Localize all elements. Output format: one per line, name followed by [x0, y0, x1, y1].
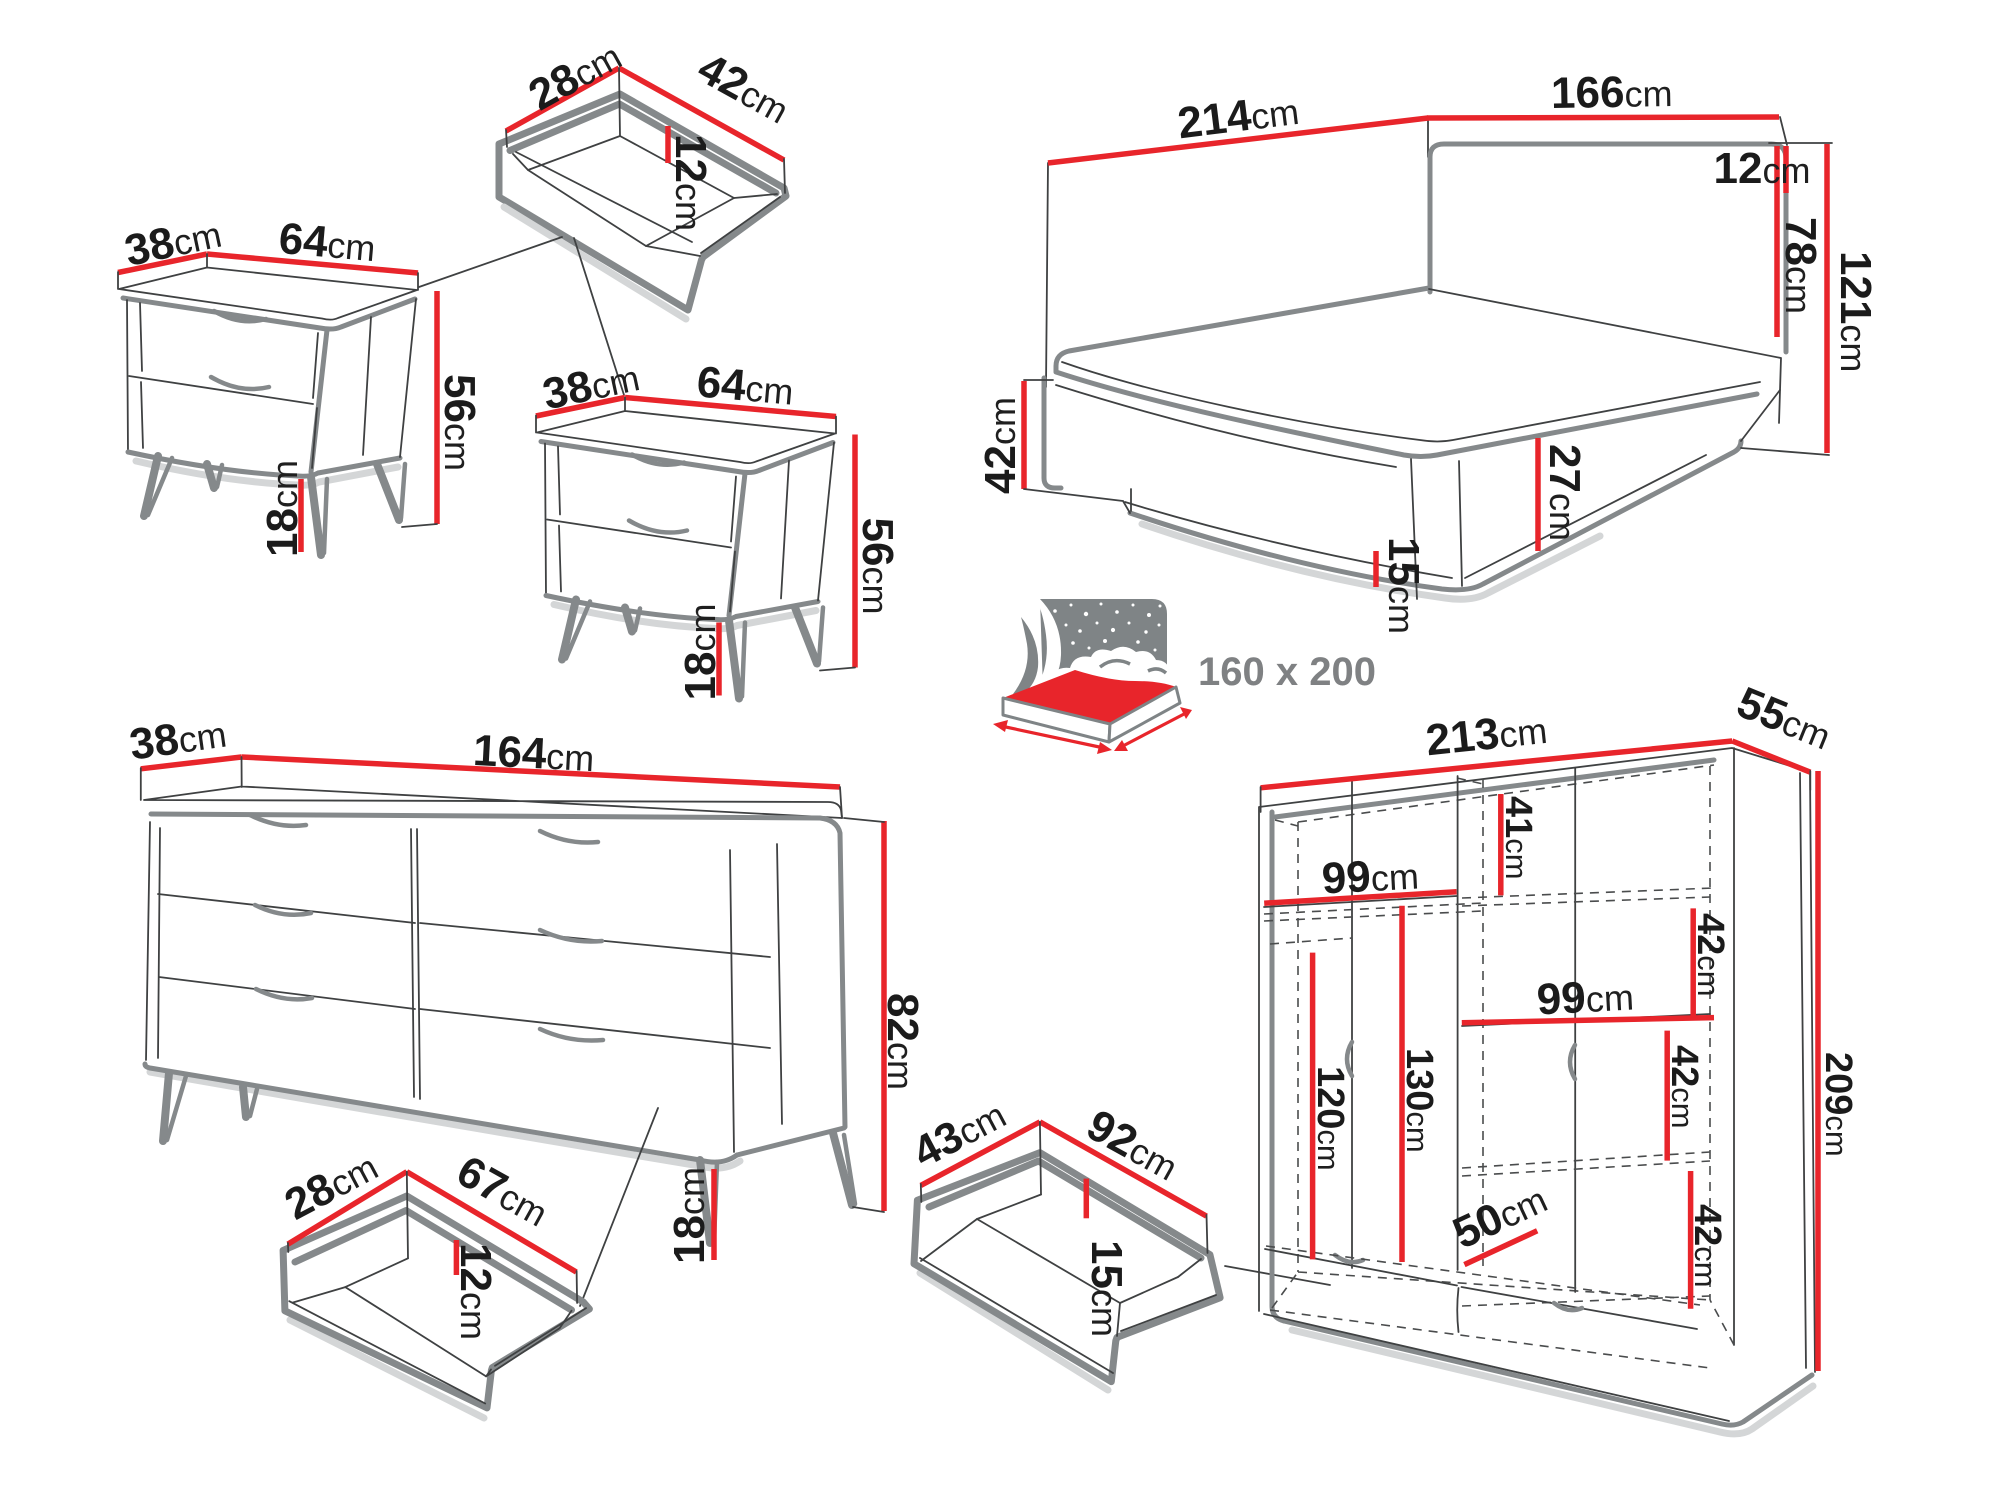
- svg-text:209cm: 209cm: [1817, 1052, 1859, 1157]
- svg-text:12cm: 12cm: [666, 134, 715, 231]
- svg-text:12cm: 12cm: [451, 1243, 500, 1340]
- svg-text:12cm: 12cm: [1714, 144, 1811, 193]
- svg-text:18cm: 18cm: [665, 1167, 714, 1264]
- svg-text:82cm: 82cm: [878, 993, 927, 1090]
- svg-text:15cm: 15cm: [1082, 1240, 1131, 1337]
- svg-text:99cm: 99cm: [1536, 971, 1635, 1025]
- svg-text:42cm: 42cm: [1686, 1204, 1728, 1288]
- svg-text:121cm: 121cm: [1831, 251, 1880, 372]
- svg-text:42cm: 42cm: [1689, 913, 1731, 997]
- svg-text:42cm: 42cm: [976, 397, 1025, 494]
- svg-text:160 x 200: 160 x 200: [1198, 650, 1376, 694]
- svg-text:78cm: 78cm: [1776, 217, 1825, 314]
- svg-text:130cm: 130cm: [1398, 1048, 1440, 1153]
- svg-text:27cm: 27cm: [1540, 444, 1589, 541]
- svg-text:15cm: 15cm: [1379, 537, 1428, 634]
- svg-text:99cm: 99cm: [1321, 850, 1420, 904]
- svg-text:41cm: 41cm: [1497, 796, 1539, 880]
- svg-text:120cm: 120cm: [1309, 1066, 1351, 1171]
- svg-text:166cm: 166cm: [1551, 67, 1673, 118]
- svg-text:42cm: 42cm: [1663, 1045, 1705, 1129]
